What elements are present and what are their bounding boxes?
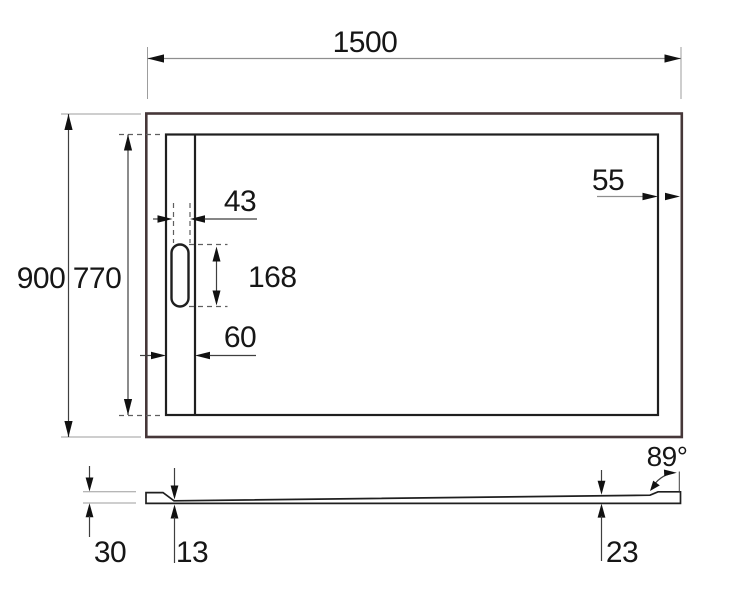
dimension-angle-89: 89°: [647, 441, 688, 492]
top-view: 1500 900 770 43: [17, 26, 682, 437]
side-view: 30 13 23 89°: [83, 441, 687, 569]
dimension-label-60: 60: [224, 321, 256, 354]
arrowhead-right: [665, 54, 682, 62]
dimension-label-13: 13: [176, 536, 208, 569]
dimension-label-770: 770: [73, 262, 122, 295]
technical-drawing-page: 1500 900 770 43: [0, 0, 738, 600]
arrowhead-down: [86, 478, 94, 492]
dimension-thickness-13: 13: [171, 468, 209, 569]
arrowhead-arc-start: [650, 481, 660, 491]
dimension-label-55: 55: [592, 164, 624, 197]
arrowhead-up: [64, 114, 72, 130]
arrowhead-down: [171, 486, 179, 500]
shower-tray-drawing: 1500 900 770 43: [0, 0, 738, 600]
dimension-thickness-23: 23: [598, 470, 639, 569]
arrowhead-down: [598, 481, 606, 495]
dimension-label-30: 30: [94, 536, 126, 569]
tray-section-profile: [146, 492, 681, 504]
dimension-label-89deg: 89°: [647, 441, 688, 472]
dimension-label-168: 168: [248, 261, 297, 294]
dimension-label-900: 900: [17, 262, 66, 295]
dimension-label-23: 23: [606, 536, 638, 569]
dimension-width-1500: 1500: [148, 26, 682, 99]
dimension-label-1500: 1500: [333, 26, 398, 59]
arrowhead-down: [124, 399, 132, 415]
arrowhead-up: [124, 135, 132, 151]
arrowhead-left: [148, 54, 165, 62]
arrowhead-up: [171, 505, 179, 519]
arrowhead-up: [598, 504, 606, 518]
dimension-edge-height-30: 30: [83, 466, 136, 569]
dimension-label-43: 43: [224, 185, 256, 218]
arrowhead-down: [64, 421, 72, 437]
arrowhead-up: [86, 503, 94, 517]
outer-rectangle: [146, 114, 682, 438]
